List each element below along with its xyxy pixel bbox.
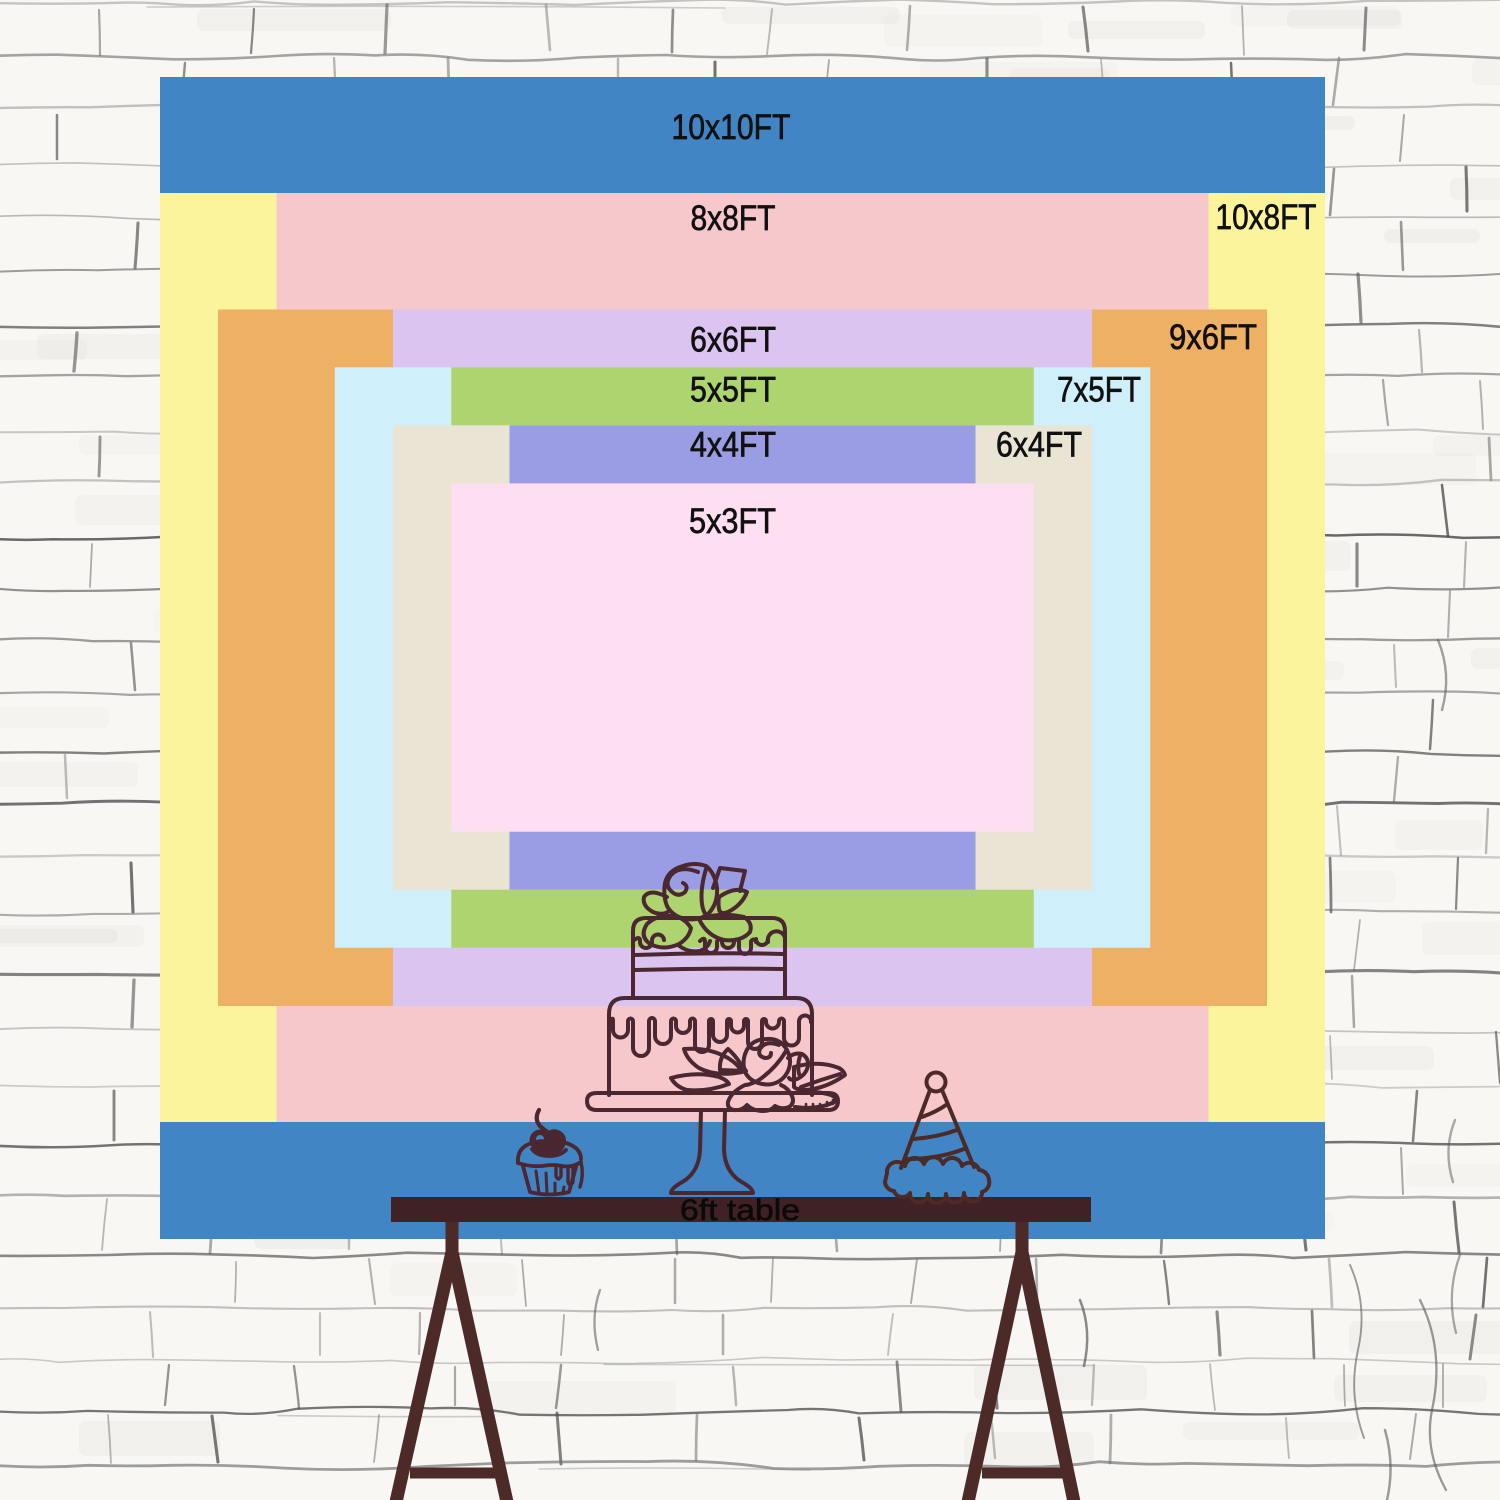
svg-text:5x3FT: 5x3FT bbox=[689, 502, 776, 541]
svg-text:10x10FT: 10x10FT bbox=[672, 108, 791, 147]
svg-text:6ft table: 6ft table bbox=[680, 1194, 800, 1227]
svg-text:6x4FT: 6x4FT bbox=[996, 425, 1082, 464]
svg-text:10x8FT: 10x8FT bbox=[1216, 198, 1317, 237]
svg-text:8x8FT: 8x8FT bbox=[691, 199, 776, 238]
svg-text:7x5FT: 7x5FT bbox=[1057, 370, 1141, 409]
svg-text:5x5FT: 5x5FT bbox=[690, 370, 776, 409]
svg-text:6x6FT: 6x6FT bbox=[690, 320, 776, 359]
svg-text:9x6FT: 9x6FT bbox=[1169, 318, 1257, 357]
svg-text:4x4FT: 4x4FT bbox=[690, 425, 776, 464]
